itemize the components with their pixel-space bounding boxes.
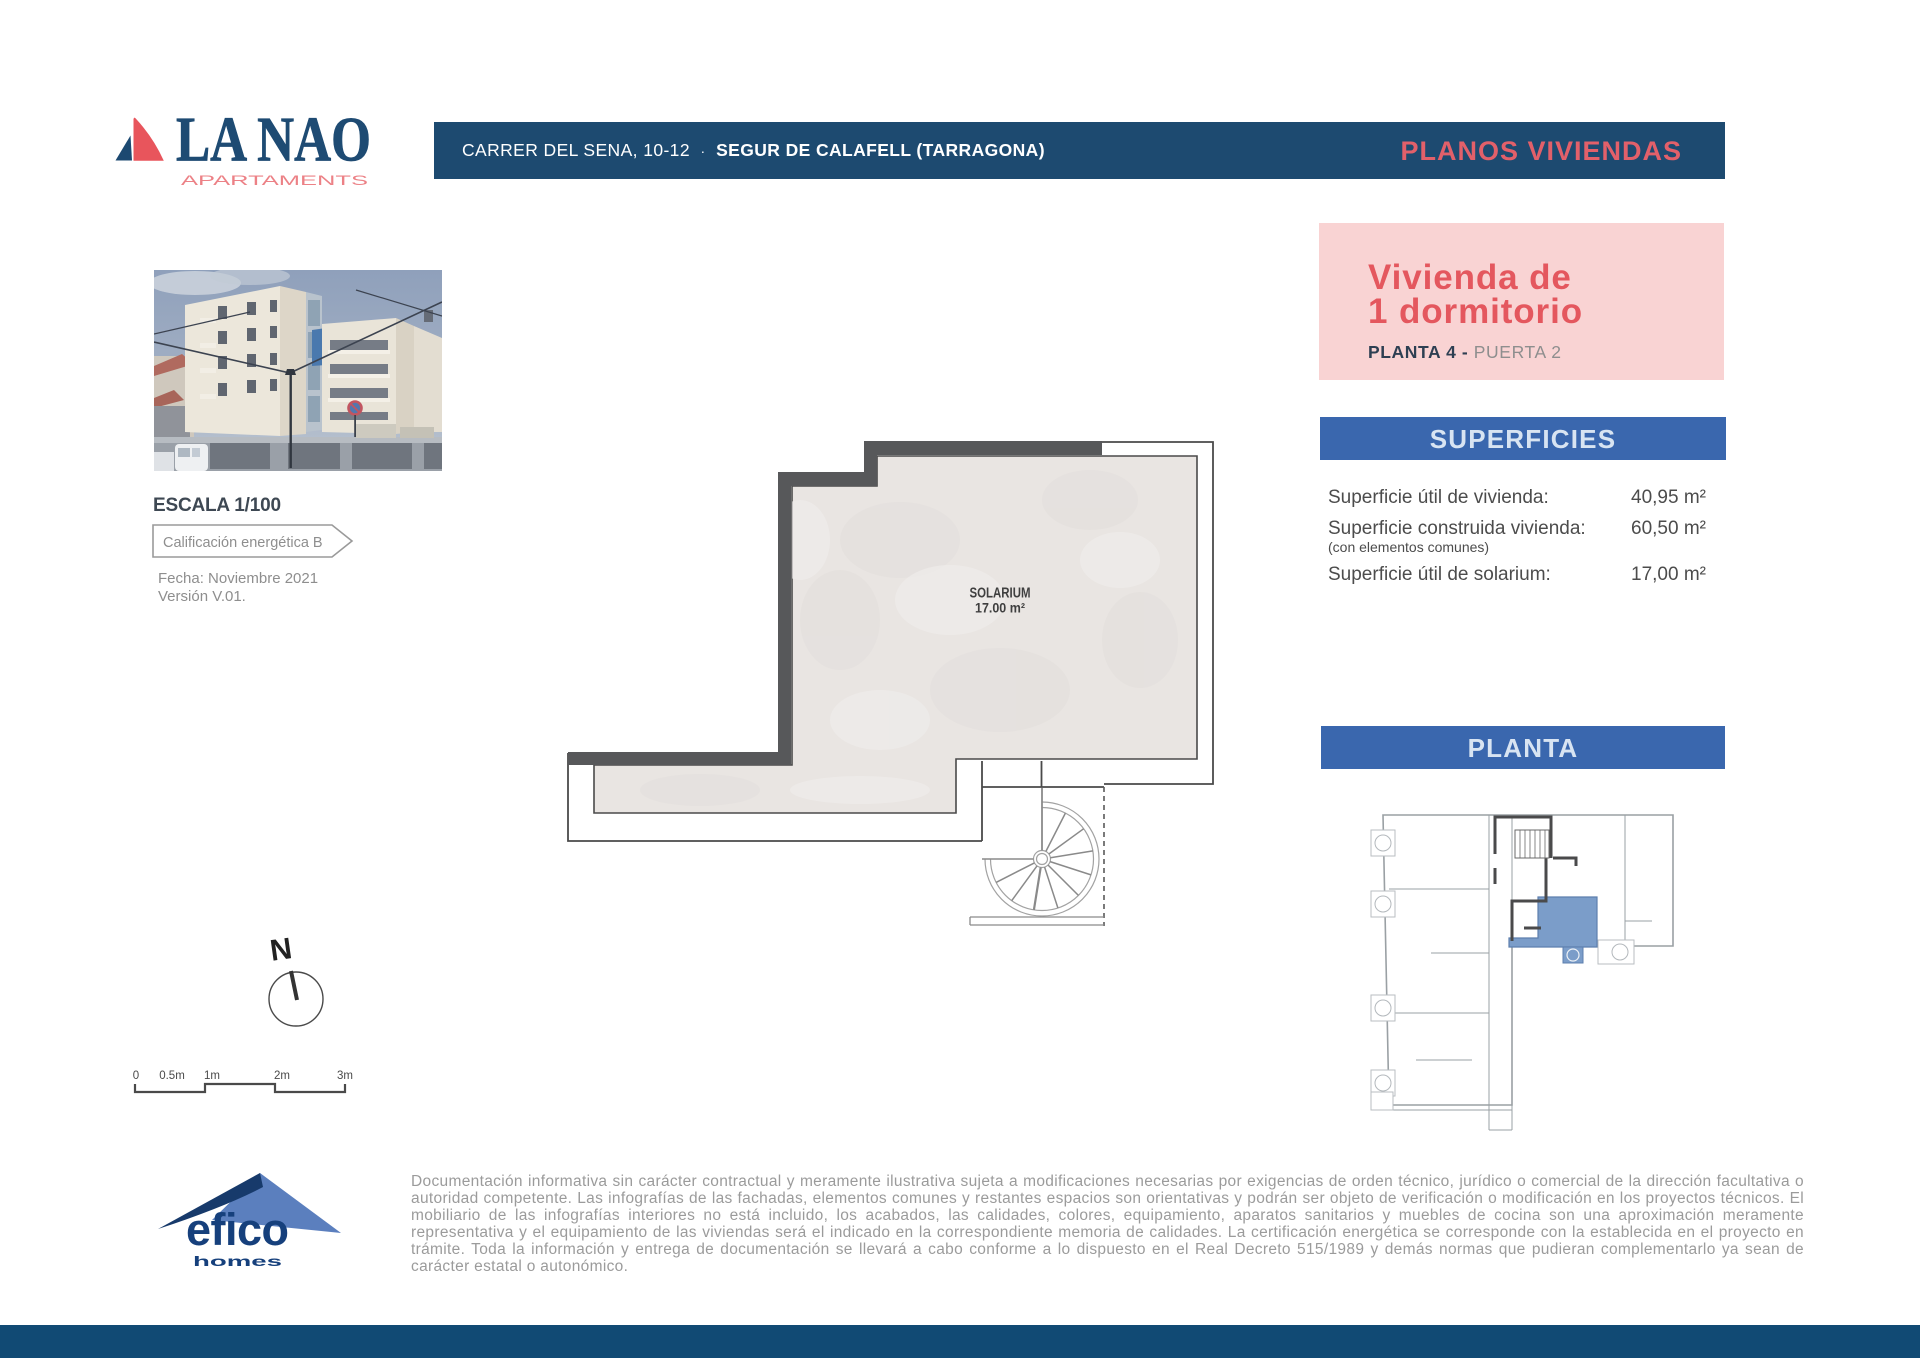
svg-text:3m: 3m [337,1070,353,1082]
svg-text:2m: 2m [274,1070,290,1082]
svg-text:APARTAMENTS: APARTAMENTS [181,173,368,188]
svg-text:0: 0 [133,1070,139,1082]
svg-text:homes: homes [193,1253,282,1269]
svg-text:Calificación energética B: Calificación energética B [163,535,323,551]
svg-text:0.5m: 0.5m [159,1070,185,1082]
svg-text:N: N [268,932,294,968]
svg-text:1m: 1m [204,1070,220,1082]
svg-text:LA NAO: LA NAO [176,105,371,175]
svg-text:17.00 m²: 17.00 m² [975,601,1025,616]
svg-text:efico: efico [186,1204,289,1255]
svg-text:SOLARIUM: SOLARIUM [970,586,1031,602]
